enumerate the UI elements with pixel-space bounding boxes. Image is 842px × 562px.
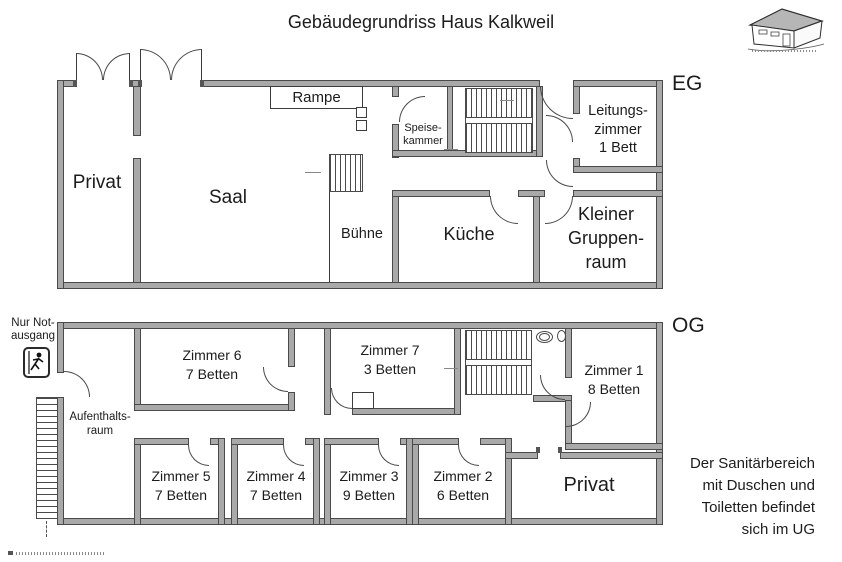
- door-arc: [283, 445, 304, 466]
- sanitary-note: Der Sanitärbereich mit Duschen und Toile…: [640, 453, 815, 541]
- wall-segment: [231, 438, 284, 445]
- stair-direction-arrow: [500, 100, 514, 101]
- wall-segment: [412, 438, 459, 445]
- floor-label-og: OG: [672, 314, 716, 338]
- wall-segment: [134, 438, 189, 445]
- stair-direction-arrow: [444, 149, 458, 150]
- door-arc: [76, 53, 103, 80]
- wall-segment: [505, 452, 538, 459]
- wall-segment: [352, 408, 461, 415]
- floor-label-eg: EG: [672, 72, 716, 96]
- wall-segment: [202, 80, 540, 87]
- floorplan-page: Gebäudegrundriss Haus Kalkweil: [0, 0, 842, 562]
- wall-segment: [57, 282, 663, 289]
- room-label-privat-og: Privat: [525, 474, 653, 497]
- room-label-leitungszimmer: Leitungs- zimmer 1 Bett: [578, 102, 658, 158]
- staircase-landing: [466, 117, 532, 124]
- wall-segment: [324, 438, 379, 445]
- door-arc: [546, 115, 573, 142]
- wall-segment: [533, 196, 540, 283]
- wall-segment: [57, 518, 663, 525]
- room-label-buehne: Bühne: [332, 226, 392, 242]
- room-label-zimmer1: Zimmer 1 8 Betten: [554, 361, 674, 399]
- door-post: [200, 80, 204, 87]
- wall-segment: [565, 443, 663, 450]
- door-arc: [458, 445, 479, 466]
- door-arc: [331, 388, 352, 409]
- room-label-rampe: Rampe: [270, 89, 363, 106]
- door-leaf: [201, 49, 202, 80]
- door-arc: [546, 160, 573, 187]
- emergency-exit-label: Nur Not- ausgang: [6, 317, 60, 343]
- wall-segment: [573, 190, 663, 197]
- door-leaf: [129, 53, 130, 80]
- wall-segment: [454, 328, 461, 415]
- washbasin-icon: [539, 333, 550, 341]
- wall-segment: [392, 190, 399, 283]
- wall-segment: [573, 80, 663, 87]
- door-arc: [566, 402, 591, 427]
- closet-nook: [352, 392, 374, 409]
- door-arc: [140, 49, 171, 80]
- room-label-kleiner-gruppenraum: Kleiner Gruppen- raum: [546, 202, 666, 274]
- stage-edge-line: [329, 192, 330, 282]
- wall-segment: [57, 322, 663, 329]
- room-label-speisekammer: Speise- kammer: [394, 122, 452, 148]
- door-arc: [188, 445, 209, 466]
- door-leaf: [76, 53, 77, 80]
- logo-caption-smudge: [752, 50, 818, 52]
- pillar: [356, 120, 367, 131]
- door-arc: [378, 445, 399, 466]
- stage-stairs: [329, 154, 363, 192]
- door-leaf: [140, 49, 141, 80]
- door-arc: [490, 196, 518, 224]
- wall-segment: [392, 86, 399, 97]
- door-arc: [171, 49, 202, 80]
- emergency-exit-icon: [23, 347, 50, 378]
- wall-segment: [288, 392, 295, 411]
- wall-segment: [134, 404, 295, 411]
- wall-segment: [573, 166, 663, 173]
- wall-segment: [518, 190, 545, 197]
- door-arc: [540, 86, 573, 119]
- door-post: [558, 447, 562, 453]
- door-post: [536, 447, 540, 453]
- door-arc: [64, 371, 90, 397]
- page-title: Gebäudegrundriss Haus Kalkweil: [0, 12, 842, 33]
- pillar: [356, 107, 367, 118]
- wall-segment: [134, 328, 141, 411]
- room-label-zimmer2: Zimmer 2 6 Betten: [403, 467, 523, 505]
- wall-segment: [392, 190, 490, 197]
- room-label-kueche: Küche: [410, 224, 528, 245]
- stair-direction-arrow: [305, 172, 321, 173]
- room-label-privat-eg: Privat: [57, 172, 137, 194]
- fine-print-smudge: [16, 552, 104, 555]
- door-arc: [103, 53, 130, 80]
- room-label-saal: Saal: [178, 187, 278, 209]
- house-logo-icon: [742, 4, 828, 54]
- wall-segment: [288, 328, 295, 367]
- door-arc: [399, 96, 425, 122]
- external-staircase: [36, 397, 58, 519]
- stair-direction-dashed-line: [46, 521, 48, 537]
- room-label-aufenthaltsraum: Aufenthalts- raum: [62, 410, 138, 438]
- staircase-landing: [466, 359, 531, 366]
- fine-print-mark: [8, 551, 13, 555]
- logo: [742, 4, 828, 56]
- room-label-zimmer7: Zimmer 7 3 Betten: [330, 341, 450, 379]
- wall-segment: [133, 86, 141, 136]
- room-label-zimmer6: Zimmer 6 7 Betten: [152, 346, 272, 384]
- door-post: [73, 80, 77, 87]
